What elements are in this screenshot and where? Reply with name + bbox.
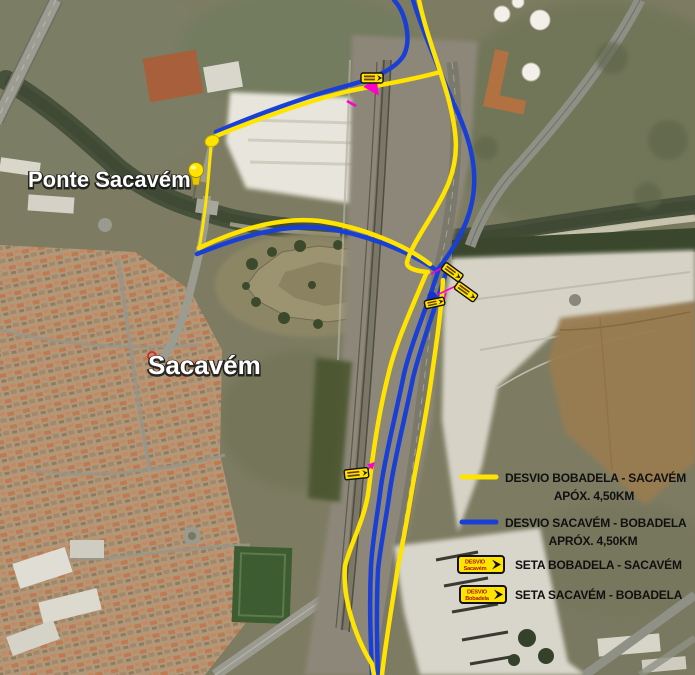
legend-label: DESVIO BOBADELA - SACAVÉM bbox=[505, 470, 686, 485]
legend-swatch-arrow-sign: DESVIO Sacavém bbox=[458, 556, 504, 573]
legend-label: SETA BOBADELA - SACAVÉM bbox=[515, 557, 682, 572]
legend-sublabel: APÓX. 4,50KM bbox=[554, 488, 634, 503]
sign-text-line1: DESVIO bbox=[465, 560, 486, 566]
legend-label: DESVIO SACAVÉM - BOBADELA bbox=[505, 515, 687, 530]
arrow-sign-plate bbox=[361, 73, 383, 83]
map-viewport: Ponte Sacavém Ponte Sacavém Sacavém Saca… bbox=[0, 0, 695, 675]
sign-text-line2: Sacavém bbox=[464, 566, 487, 572]
arrow-sign-plate bbox=[344, 467, 369, 479]
sign-text-line1: DESVIO bbox=[467, 590, 488, 596]
place-label-sacavem: Sacavém bbox=[148, 350, 261, 380]
legend-item-seta-sacavem-bobadela: DESVIO Bobadela SETA SACAVÉM - BOBADELA bbox=[460, 586, 683, 603]
legend-swatch-arrow-sign: DESVIO Bobadela bbox=[460, 586, 506, 603]
legend-label: SETA SACAVÉM - BOBADELA bbox=[515, 587, 683, 602]
place-label-ponte-sacavem: Ponte Sacavém bbox=[28, 167, 191, 192]
satellite-map[interactable]: Ponte Sacavém Ponte Sacavém Sacavém Saca… bbox=[0, 0, 695, 675]
legend-item-seta-bobadela-sacavem: DESVIO Sacavém SETA BOBADELA - SACAVÉM bbox=[458, 556, 682, 573]
sign-text-line2: Bobadela bbox=[465, 596, 490, 602]
legend-sublabel: APRÓX. 4,50KM bbox=[549, 533, 638, 548]
